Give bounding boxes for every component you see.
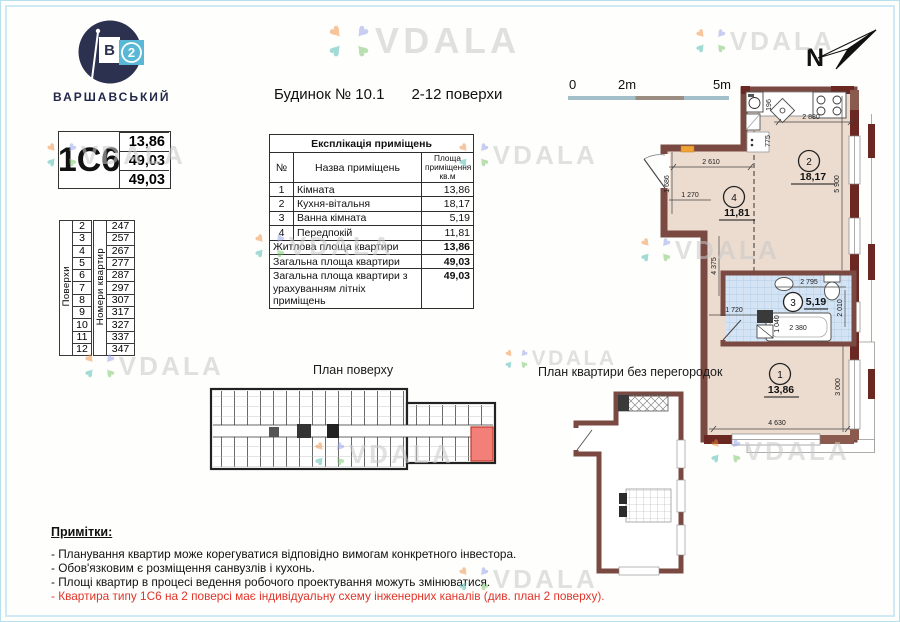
vdala-clover-icon: ♥♥♥♥	[87, 353, 113, 379]
room3-area: 5,19	[806, 296, 827, 308]
floors-table: Поверхи 2 3 4 5 6 7 8 9 10 11 12	[59, 220, 92, 356]
watermark-text: VDALA	[493, 142, 598, 168]
shaft	[619, 493, 627, 504]
note-warning: - Квартира типу 1С6 на 2 поверсі має інд…	[51, 590, 691, 604]
grid-zone	[626, 489, 671, 522]
notes-title: Примітки:	[51, 525, 691, 539]
note-item: - Обов'язковим є розміщення санвузлів і …	[51, 562, 691, 576]
sheet-title: Будинок № 10.1 2-12 поверхи	[274, 86, 502, 103]
toilet	[825, 282, 840, 300]
explication-total-row: Загальна площа квартири з урахуванням лі…	[270, 269, 474, 309]
vdala-clover-icon: ♥♥♥♥	[331, 23, 367, 59]
dim-room2-height: 5 900	[834, 175, 841, 193]
col-name: Назва приміщень	[294, 153, 422, 183]
building-floor-plan	[209, 387, 497, 471]
sink	[775, 278, 793, 291]
explication-row: 1 Кімната 13,86	[270, 183, 474, 197]
utility-marker	[681, 146, 694, 152]
dim-bath-height: 2 010	[837, 299, 844, 317]
vdala-clover-icon: ♥♥♥♥	[698, 28, 724, 54]
elevator-core	[327, 424, 339, 438]
dim-tub-length: 2 380	[789, 325, 807, 332]
floors-label: Поверхи	[60, 221, 73, 356]
dim-4375: 4 375	[711, 257, 718, 275]
dim-hall-width: 2 610	[702, 159, 720, 166]
note-item: - Планування квартир може корегуватися в…	[51, 548, 691, 562]
explication-row: 2 Кухня-вітальня 18,17	[270, 197, 474, 211]
floor-plan-title: План поверху	[313, 363, 393, 377]
open-plan-title: План квартири без перегородок	[538, 365, 722, 379]
explication-total-row: Загальна площа квартири 49,03	[270, 254, 474, 268]
shaft	[618, 395, 629, 411]
flag-number: 2	[128, 45, 135, 60]
window	[677, 440, 685, 468]
dim-1720: 1 720	[725, 307, 743, 314]
col-area: Площа приміщення кв.м	[422, 153, 474, 183]
dim-1686: 1 686	[664, 175, 671, 193]
brand-name: ВАРШАВСЬКИЙ	[53, 90, 167, 104]
room1-number: 1	[777, 370, 783, 381]
watermark-text: VDALA	[375, 23, 521, 59]
unit-code: 1С6	[59, 132, 119, 189]
explication-row: 3 Ванна кімната 5,19	[270, 211, 474, 225]
room2-area: 18,17	[800, 171, 826, 183]
room2-number: 2	[806, 157, 812, 168]
room1-area: 13,86	[768, 384, 794, 396]
watermark-text: VDALA	[119, 353, 224, 379]
apartments-label: Номери квартир	[94, 221, 107, 356]
vdala-watermark: ♥♥♥♥ VDALA	[461, 142, 598, 168]
window	[677, 480, 685, 512]
scale-0: 0	[569, 77, 576, 92]
unit-total-area: 49,03	[119, 151, 169, 170]
dim-room1-height: 3 000	[835, 378, 842, 396]
notes-block: Примітки: - Планування квартир може коре…	[51, 525, 691, 604]
apartment-numbers-table: Номери квартир 247 257 267 277 287 297 3…	[93, 220, 135, 356]
unit-total-area-summer: 49,03	[119, 170, 169, 189]
room4-area: 11,81	[724, 207, 750, 219]
dim-kitchen-width: 2 880	[802, 114, 820, 121]
dim-1270: 1 270	[681, 192, 699, 199]
developer-logo-icon: В 2	[71, 16, 151, 88]
floors-range: 2-12 поверхи	[411, 86, 502, 103]
units-top-band	[213, 391, 405, 425]
explication-row: 4 Передпокій 11,81	[270, 226, 474, 240]
vdala-watermark: ♥♥♥♥ VDALA	[87, 353, 224, 379]
shaft	[619, 506, 627, 517]
highlighted-unit	[471, 427, 493, 461]
dim-196: 196	[766, 99, 773, 111]
vdala-clover-icon: ♥♥♥♥	[506, 348, 527, 369]
flag-pole-top	[96, 29, 100, 33]
dim-1040: 1 040	[774, 315, 781, 333]
unit-card: 1С6 13,86 49,03 49,03	[58, 131, 171, 189]
elevator-core	[297, 424, 311, 438]
dim-bath-width: 2 795	[800, 279, 818, 286]
room3-number: 3	[790, 298, 796, 309]
explication-total-row: Житлова площа квартири 13,86	[270, 240, 474, 254]
explication-title: Експлікація приміщень	[270, 135, 474, 153]
vdala-watermark: ♥♥♥♥ VDALA	[331, 23, 521, 59]
building-title: Будинок № 10.1	[274, 86, 384, 103]
flag-letter: В	[104, 42, 115, 59]
room4-number: 4	[731, 193, 737, 204]
dim-775: 775	[765, 135, 772, 147]
toilet-tank	[824, 275, 840, 282]
col-no: №	[270, 153, 294, 183]
north-label: N	[806, 44, 824, 72]
north-compass-icon: N	[796, 25, 886, 73]
floorplan-sheet: В 2 ВАРШАВСЬКИЙ Будинок № 10.1 2-12 пове…	[0, 0, 900, 622]
units-bottom-band	[213, 437, 405, 467]
unit-living-area: 13,86	[119, 132, 169, 151]
corridor	[213, 425, 493, 437]
dim-room1-width: 4 630	[768, 420, 786, 427]
units-top-band	[409, 405, 493, 425]
floor-cell: 2	[73, 221, 92, 233]
stair-core	[269, 427, 279, 437]
note-item: - Площі квартир в процесі ведення робочо…	[51, 576, 691, 590]
explication-table: Експлікація приміщень № Назва приміщень …	[269, 134, 474, 309]
vent-shaft	[757, 310, 773, 323]
